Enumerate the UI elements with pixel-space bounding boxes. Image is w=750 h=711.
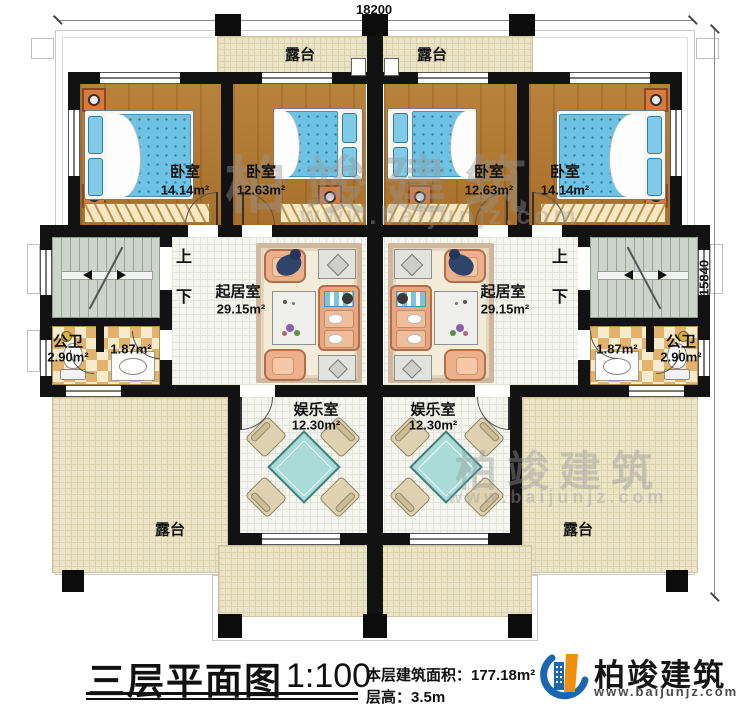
wardrobe xyxy=(386,203,470,223)
bed-pillow xyxy=(647,158,662,196)
wall xyxy=(562,225,710,237)
living-left-furniture xyxy=(172,237,366,385)
logo-building-orange xyxy=(564,654,578,692)
bed-pillow xyxy=(88,158,103,196)
bed-pillow xyxy=(393,113,408,143)
stair-down-label-left: 下 xyxy=(176,290,192,306)
table-inner-line xyxy=(276,440,333,497)
party-wall-pane xyxy=(384,58,399,76)
chair xyxy=(463,476,505,518)
chair-back xyxy=(250,491,272,513)
nightstand xyxy=(82,88,106,112)
wall xyxy=(578,290,590,330)
room-label-bedroom4: 卧室 xyxy=(550,165,580,180)
column xyxy=(362,14,388,36)
bed-pillow xyxy=(88,116,103,154)
stair-up-label-left: 上 xyxy=(176,250,192,266)
window xyxy=(570,72,650,84)
throw-pillow xyxy=(328,314,343,324)
door-leaf xyxy=(240,397,242,430)
table-decor xyxy=(328,359,348,379)
chair-back xyxy=(394,491,416,513)
end-table xyxy=(318,355,356,381)
table-inner-line xyxy=(418,440,475,497)
armchair xyxy=(444,349,486,381)
corner-sill xyxy=(31,38,54,59)
table-speck xyxy=(283,300,287,304)
bed-pillow xyxy=(342,113,357,143)
table-speck xyxy=(463,300,467,304)
room-label-living-right: 起居室 xyxy=(480,285,525,300)
brand-logo-icon xyxy=(540,646,590,702)
room-label-ent-right: 娱乐室 xyxy=(410,403,455,418)
end-table xyxy=(394,249,432,279)
bedroom3-furniture xyxy=(384,84,517,225)
staircase-right xyxy=(590,237,698,318)
room-area-bedroom2: 12.63m² xyxy=(237,184,285,197)
title-underline-2 xyxy=(86,698,358,700)
floor-plan-canvas: 18200 15840 xyxy=(0,0,750,711)
window xyxy=(629,385,684,397)
chair xyxy=(245,476,287,518)
room-label-terrace-top-right: 露台 xyxy=(417,48,447,63)
terrace-bottom-right-floor xyxy=(522,397,698,573)
dim-tick xyxy=(710,592,720,602)
sliding-door xyxy=(262,533,340,545)
three-seat-sofa xyxy=(390,285,432,351)
armchair-cushion xyxy=(456,357,478,375)
corner-sill xyxy=(696,38,719,59)
throw-pillow xyxy=(407,334,422,344)
room-area-bedroom1: 14.14m² xyxy=(161,184,209,197)
room-label-bedroom1: 卧室 xyxy=(170,165,200,180)
wall xyxy=(160,237,172,247)
sink-basin xyxy=(119,358,147,375)
stair-up-label-right: 上 xyxy=(552,250,568,266)
room-area-living-left: 29.15m² xyxy=(217,303,265,316)
room-label-terrace-bottom-right: 露台 xyxy=(563,523,593,538)
wall xyxy=(488,533,522,545)
party-wall xyxy=(367,30,383,620)
room-subarea-bath-right: 1.87m² xyxy=(596,343,637,356)
right-dimension-line xyxy=(714,30,715,598)
nightstand xyxy=(644,88,668,112)
side-sill xyxy=(27,244,40,294)
room-area-bath-left: 2.90m² xyxy=(47,351,88,364)
stair-down-label-right: 下 xyxy=(552,290,568,306)
lamp xyxy=(88,94,100,106)
stair-arrow xyxy=(83,270,92,280)
dimension-top: 18200 xyxy=(356,2,392,17)
plan-scale: 1:100 xyxy=(286,657,371,696)
wall xyxy=(40,225,188,237)
window xyxy=(66,385,121,397)
column xyxy=(62,570,84,592)
column xyxy=(509,14,535,36)
bed-pillow xyxy=(393,147,408,177)
wall xyxy=(160,385,240,397)
wall xyxy=(510,385,590,397)
bed-pillow xyxy=(647,116,662,154)
flower-decor xyxy=(294,330,300,336)
stair-arrow xyxy=(658,270,667,280)
room-area-bath-right: 2.90m² xyxy=(660,351,701,364)
window xyxy=(68,110,80,176)
wall xyxy=(340,533,367,545)
lamp xyxy=(650,94,662,106)
wall xyxy=(517,72,529,237)
column xyxy=(215,14,241,36)
room-label-bedroom2: 卧室 xyxy=(246,165,276,180)
wall xyxy=(646,326,654,352)
bedroom1-furniture xyxy=(80,84,221,225)
room-label-bedroom3: 卧室 xyxy=(474,165,504,180)
sink-basin xyxy=(603,358,631,375)
window xyxy=(100,72,180,84)
wall xyxy=(578,237,590,247)
wall xyxy=(590,318,698,326)
door-leaf xyxy=(216,192,218,225)
flower-decor xyxy=(286,324,294,332)
window xyxy=(262,72,332,84)
room-label-living-left: 起居室 xyxy=(215,285,260,300)
dimension-right: 15840 xyxy=(697,260,712,296)
flower-decor xyxy=(463,331,468,336)
wall xyxy=(52,318,160,326)
three-seat-sofa xyxy=(318,285,360,351)
column xyxy=(363,614,387,638)
room-label-terrace-bottom-left: 露台 xyxy=(155,523,185,538)
wall xyxy=(508,225,532,237)
table-speck xyxy=(292,302,295,305)
chair-back xyxy=(334,491,356,513)
room-label-terrace-top-left: 露台 xyxy=(285,48,315,63)
bed-pillow xyxy=(342,147,357,177)
wall xyxy=(383,225,478,237)
room-area-bedroom3: 12.63m² xyxy=(465,184,513,197)
end-table xyxy=(394,355,432,381)
lamp xyxy=(414,191,426,203)
brand-logo xyxy=(540,646,590,702)
wall xyxy=(228,533,262,545)
column xyxy=(218,614,242,638)
room-label-ent-left: 娱乐室 xyxy=(293,403,338,418)
flower-decor xyxy=(450,330,456,336)
throw-pillow xyxy=(328,334,343,344)
wall xyxy=(383,385,475,397)
table-speck xyxy=(455,302,458,305)
bedroom4-furniture xyxy=(529,84,670,225)
room-area-ent-right: 12.30m² xyxy=(409,419,457,432)
room-subarea-bath-left: 1.87m² xyxy=(110,343,151,356)
lamp xyxy=(324,191,336,203)
room-area-living-right: 29.15m² xyxy=(481,303,529,316)
window xyxy=(670,110,682,176)
window xyxy=(40,250,52,295)
armchair-cushion xyxy=(272,357,294,375)
bedroom2-furniture xyxy=(233,84,366,225)
column xyxy=(508,614,532,638)
side-sill xyxy=(710,244,723,294)
wardrobe xyxy=(280,203,364,223)
table-decor xyxy=(401,254,424,277)
wall xyxy=(221,72,233,237)
wall xyxy=(510,397,522,545)
wall xyxy=(275,385,367,397)
plan-title: 三层平面图 xyxy=(88,651,283,705)
staircase-left xyxy=(52,237,160,318)
round-pillow xyxy=(342,293,353,304)
party-wall-pane xyxy=(351,58,366,76)
table-decor xyxy=(402,359,422,379)
armchair xyxy=(264,349,306,381)
throw-pillow xyxy=(407,314,422,324)
logo-building-blue xyxy=(554,662,564,690)
wall xyxy=(272,225,367,237)
title-underline xyxy=(86,692,358,695)
column xyxy=(666,570,688,592)
brand-url: www.baijunjz.com xyxy=(594,684,738,699)
room-area-bedroom4: 14.14m² xyxy=(541,184,589,197)
person-head xyxy=(290,249,301,260)
wall xyxy=(228,397,240,545)
floor-area-text: 本层建筑面积：177.18m² xyxy=(366,664,535,685)
flower-decor xyxy=(282,331,287,336)
sliding-door xyxy=(410,533,488,545)
table-decor xyxy=(327,254,350,277)
room-label-bath-left: 公卫 xyxy=(53,335,83,350)
room-area-ent-left: 12.30m² xyxy=(292,419,340,432)
wall xyxy=(383,533,410,545)
dim-tick xyxy=(710,24,720,34)
person-head xyxy=(449,249,460,260)
door-leaf xyxy=(532,192,534,225)
room-label-bath-right: 公卫 xyxy=(666,335,696,350)
side-sill xyxy=(27,330,40,372)
window xyxy=(418,72,488,84)
coffee-table xyxy=(434,291,478,345)
wall xyxy=(96,326,104,352)
stair-arrow xyxy=(117,270,126,280)
coffee-table xyxy=(272,291,316,345)
wall xyxy=(218,225,242,237)
chair-back xyxy=(478,491,500,513)
floor-height-text: 层高：3.5m xyxy=(366,686,445,707)
stair-arrow xyxy=(624,270,633,280)
terrace-bottom-left-floor xyxy=(52,397,228,573)
wall xyxy=(160,290,172,330)
end-table xyxy=(318,249,356,279)
round-pillow xyxy=(397,293,408,304)
